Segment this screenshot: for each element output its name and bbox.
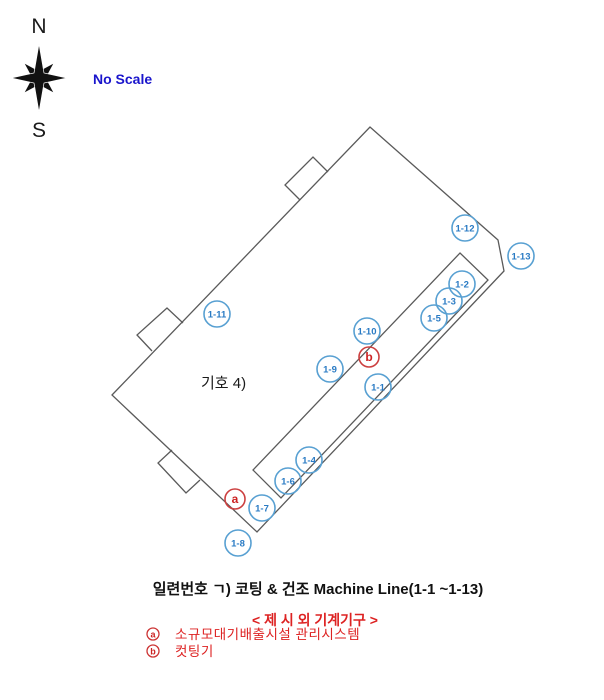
marker-label-1-10: 1-10 bbox=[357, 327, 376, 338]
marker-label-1-3: 1-3 bbox=[442, 297, 456, 308]
marker-label-a: a bbox=[232, 492, 239, 506]
building-perimeter bbox=[112, 127, 504, 532]
site-plan-page: N S No Scale 기호 4) 1-11-21-31-41-51-61-7… bbox=[0, 0, 604, 700]
marker-label-1-4: 1-4 bbox=[302, 456, 316, 467]
legend-item-a: a 소규모대기배출시설 관리시스템 bbox=[147, 627, 360, 642]
no-scale-label: No Scale bbox=[93, 71, 152, 87]
marker-label-1-13: 1-13 bbox=[511, 252, 530, 263]
room-label: 기호 4) bbox=[201, 375, 246, 392]
caption-title: 일련번호 ㄱ) 코팅 & 건조 Machine Line(1-1 ~1-13) bbox=[153, 580, 484, 598]
site-plan-diagram: N S No Scale 기호 4) 1-11-21-31-41-51-61-7… bbox=[0, 0, 604, 700]
marker-label-1-9: 1-9 bbox=[323, 365, 337, 376]
legend-symbol-b: b bbox=[150, 647, 156, 657]
marker-label-1-11: 1-11 bbox=[208, 310, 227, 321]
building-outline bbox=[112, 127, 504, 532]
marker-label-1-1: 1-1 bbox=[371, 383, 385, 394]
legend-symbol-a: a bbox=[150, 630, 156, 640]
legend-label-b: 컷팅기 bbox=[175, 644, 214, 659]
legend-label-a: 소규모대기배출시설 관리시스템 bbox=[175, 627, 360, 642]
compass-south-label: S bbox=[32, 119, 46, 142]
marker-label-1-12: 1-12 bbox=[455, 224, 474, 235]
compass-rose: N S bbox=[11, 15, 67, 142]
marker-label-1-8: 1-8 bbox=[231, 539, 245, 550]
marker-label-1-7: 1-7 bbox=[255, 504, 269, 515]
compass-north-label: N bbox=[31, 15, 46, 38]
legend-item-b: b 컷팅기 bbox=[147, 644, 214, 659]
marker-label-1-5: 1-5 bbox=[427, 314, 441, 325]
marker-label-b: b bbox=[365, 350, 372, 364]
marker-label-1-2: 1-2 bbox=[455, 280, 469, 291]
caption-block: 일련번호 ㄱ) 코팅 & 건조 Machine Line(1-1 ~1-13) … bbox=[147, 580, 483, 659]
caption-subtitle: < 제 시 외 기계기구 > bbox=[252, 612, 378, 628]
machine-markers: 1-11-21-31-41-51-61-71-81-91-101-111-121… bbox=[204, 215, 534, 556]
marker-label-1-6: 1-6 bbox=[281, 477, 295, 488]
compass-star-cardinal-icon bbox=[11, 44, 67, 112]
